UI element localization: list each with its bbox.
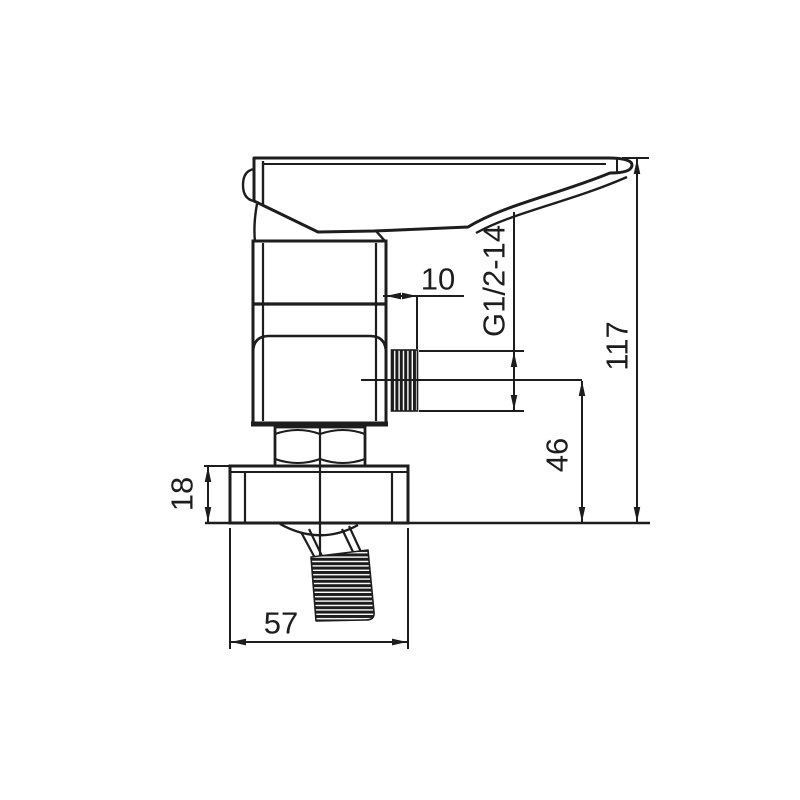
dim-label-outlet-thread: G1/2-14 bbox=[477, 225, 512, 337]
bottom-thread-hatch bbox=[311, 550, 374, 621]
handle-dome-left-edge bbox=[254, 204, 257, 242]
dim57-arrow-left bbox=[231, 639, 246, 646]
dim10-arrow-right bbox=[402, 293, 417, 300]
handle-lever bbox=[243, 158, 632, 242]
handle-underside-curve bbox=[476, 177, 627, 233]
dim117-arrow-up bbox=[634, 159, 641, 174]
dim-label-overall-height: 117 bbox=[600, 321, 635, 370]
dim10-arrow-left bbox=[386, 293, 401, 300]
hex-nut-facet-arc-bottom-left bbox=[275, 459, 320, 463]
body-collar-shoulder bbox=[253, 336, 386, 353]
dim46-arrow-down bbox=[579, 507, 586, 522]
body-outline bbox=[253, 241, 386, 423]
dim18-arrow-up bbox=[205, 467, 212, 482]
dim57-arrow-right bbox=[392, 639, 407, 646]
technical-drawing-page: 10 G1/2-14 46 bbox=[0, 0, 800, 800]
dim117-arrow-down bbox=[634, 507, 641, 522]
hex-nut-facet-arc-bottom-right bbox=[320, 459, 365, 463]
dim-outlet-protrusion: 10 bbox=[383, 262, 464, 350]
dim-label-wall-plate-depth: 18 bbox=[165, 477, 200, 511]
handle-outline bbox=[254, 158, 632, 232]
dim-plate-depth: 18 bbox=[165, 466, 245, 522]
dim-overall-height: 117 bbox=[600, 158, 650, 522]
hex-nut-facet-arc-top-right bbox=[320, 430, 365, 434]
dim18-arrow-down bbox=[205, 507, 212, 522]
faucet-technical-drawing: 10 G1/2-14 46 bbox=[0, 0, 800, 800]
handle-end-button bbox=[243, 169, 254, 201]
dim-label-outlet-center-to-wall: 46 bbox=[540, 438, 575, 472]
dimthread-arrow-down bbox=[511, 395, 518, 410]
dim46-arrow-up bbox=[579, 381, 586, 396]
hex-nut-facet-arc-top-left bbox=[275, 430, 320, 434]
dim-outlet-thread: G1/2-14 bbox=[419, 212, 524, 411]
dim-label-wall-plate-width: 57 bbox=[264, 606, 298, 641]
dimthread-arrow-up bbox=[511, 352, 518, 367]
mixer-body bbox=[251, 241, 388, 424]
dim-label-outlet-protrusion: 10 bbox=[421, 262, 455, 297]
